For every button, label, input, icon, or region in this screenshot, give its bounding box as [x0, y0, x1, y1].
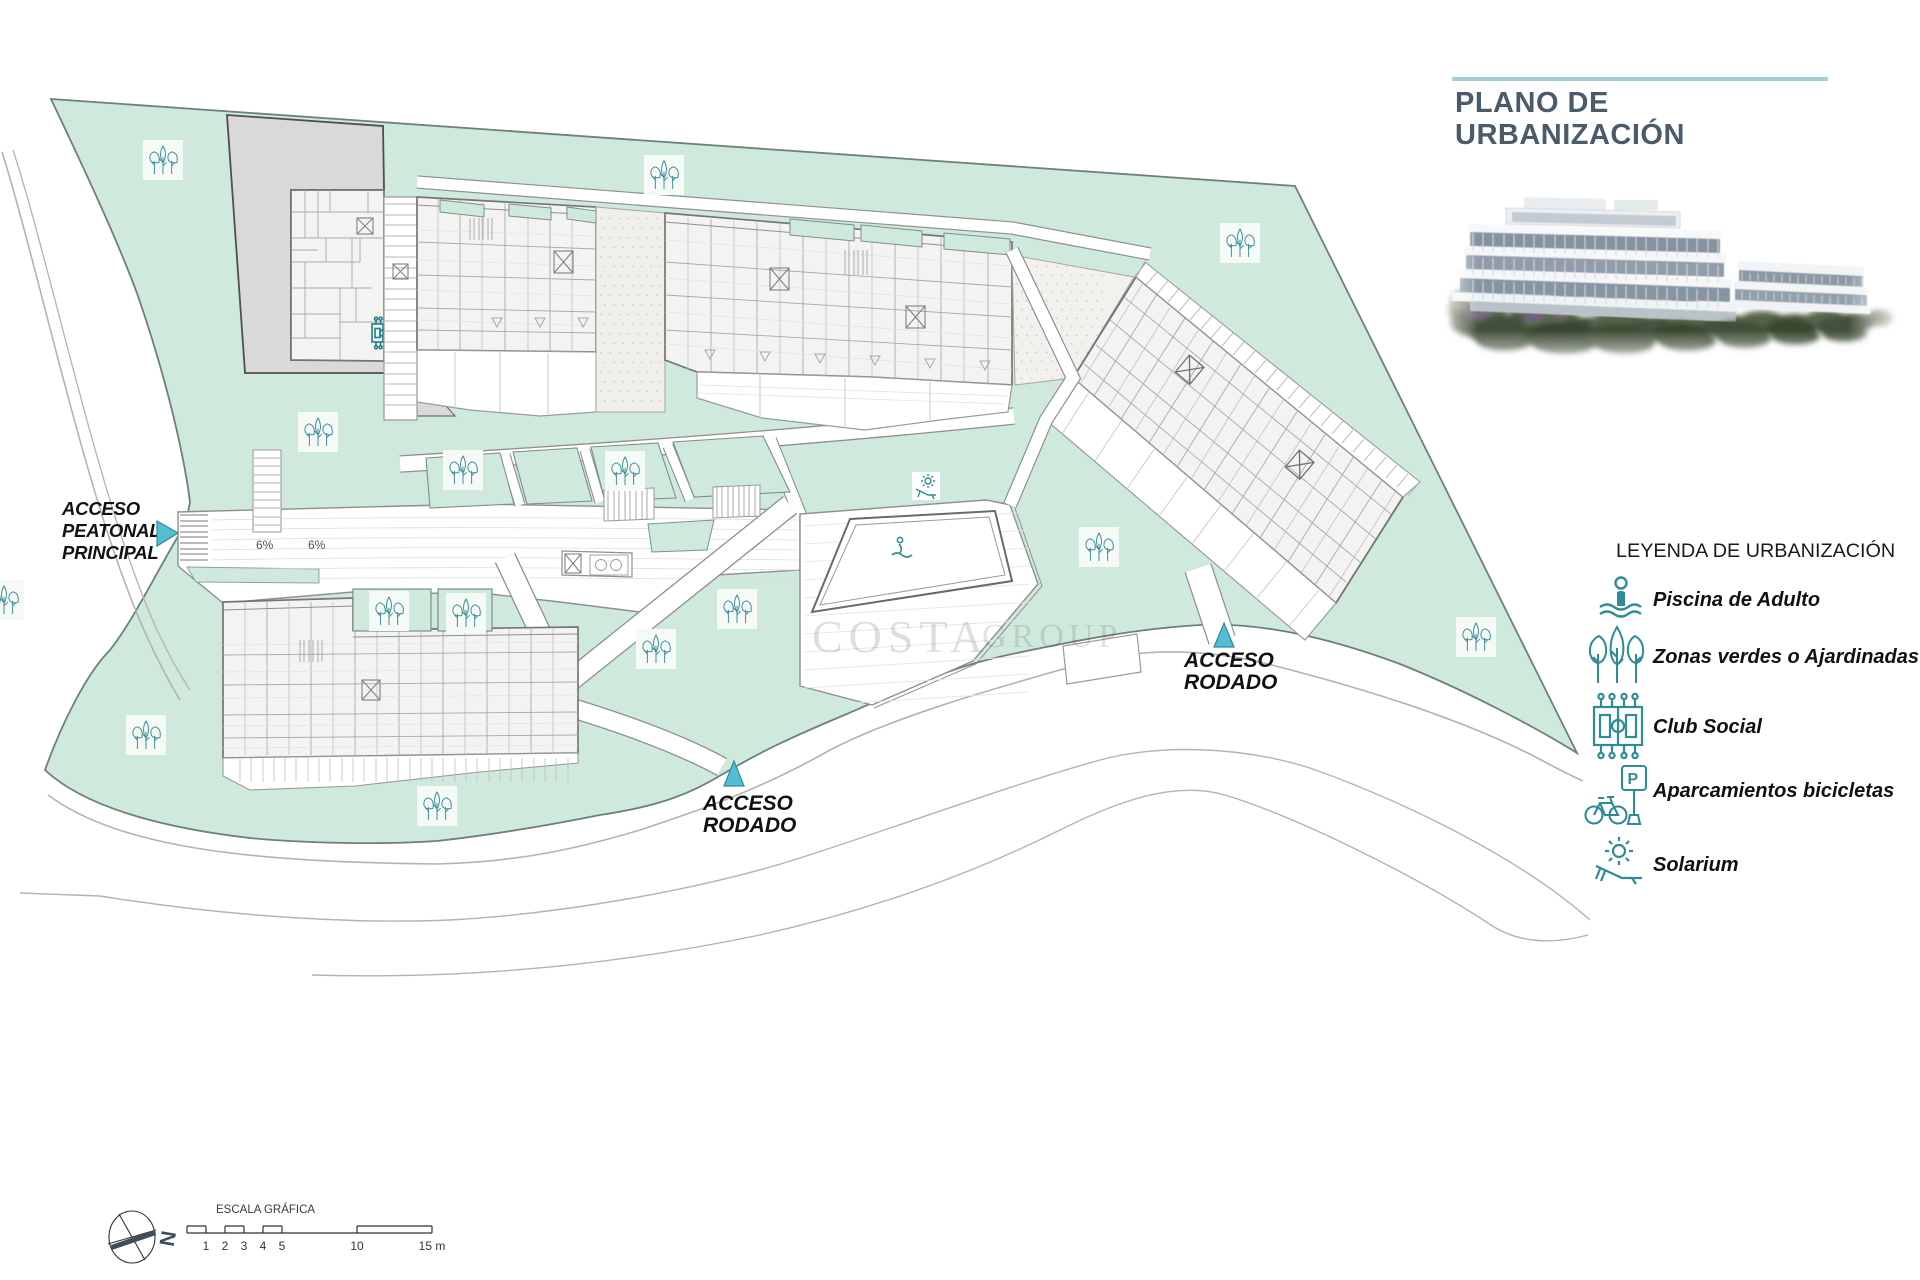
svg-text:ACCESO: ACCESO [702, 792, 793, 815]
svg-text:PEATONAL: PEATONAL [62, 520, 160, 541]
svg-text:GROUP: GROUP [982, 618, 1122, 655]
svg-text:2: 2 [222, 1239, 229, 1253]
svg-text:URBANIZACIÓN: URBANIZACIÓN [1455, 117, 1685, 151]
svg-text:PLANO DE: PLANO DE [1455, 87, 1609, 119]
svg-text:5: 5 [279, 1239, 286, 1253]
svg-text:Zonas verdes o Ajardinadas: Zonas verdes o Ajardinadas [1652, 646, 1919, 668]
svg-text:4: 4 [260, 1239, 267, 1253]
svg-text:Club Social: Club Social [1653, 716, 1762, 738]
svg-text:ESCALA GRÁFICA: ESCALA GRÁFICA [216, 1203, 315, 1216]
svg-text:6%: 6% [308, 538, 326, 552]
svg-text:ACCESO: ACCESO [1183, 649, 1274, 672]
svg-text:3: 3 [241, 1239, 248, 1253]
svg-text:ACCESO: ACCESO [61, 498, 141, 519]
svg-text:RODADO: RODADO [1184, 671, 1277, 694]
svg-text:COSTA: COSTA [812, 611, 989, 662]
svg-text:PRINCIPAL: PRINCIPAL [62, 542, 159, 563]
svg-text:10: 10 [350, 1239, 364, 1253]
svg-text:1: 1 [203, 1239, 210, 1253]
svg-text:6%: 6% [256, 538, 274, 552]
svg-text:LEYENDA DE URBANIZACIÓN: LEYENDA DE URBANIZACIÓN [1616, 539, 1895, 562]
svg-text:15 m: 15 m [419, 1239, 446, 1253]
svg-text:Piscina de Adulto: Piscina de Adulto [1653, 589, 1820, 611]
svg-text:P: P [1628, 771, 1639, 788]
svg-text:Aparcamientos bicicletas: Aparcamientos bicicletas [1652, 780, 1894, 802]
svg-text:Solarium: Solarium [1653, 854, 1739, 876]
svg-text:RODADO: RODADO [703, 814, 796, 837]
